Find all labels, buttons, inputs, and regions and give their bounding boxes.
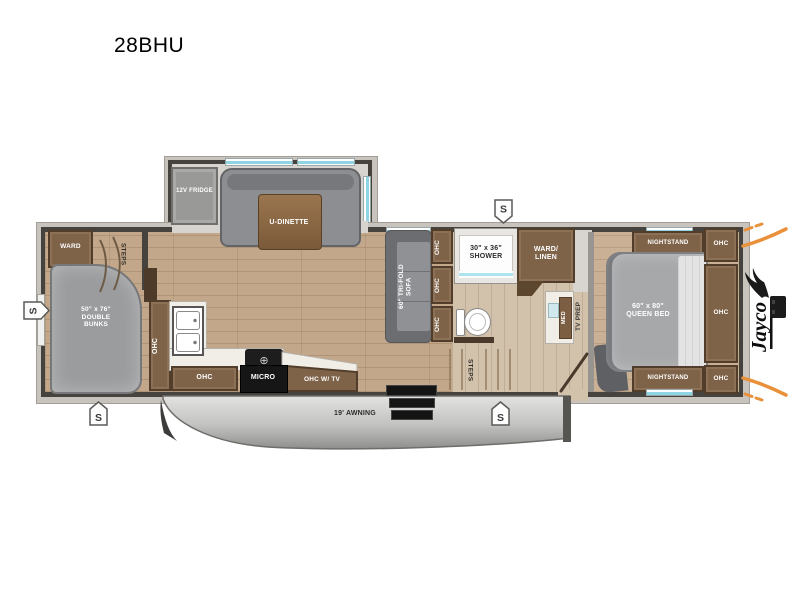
nightstand-label: NIGHTSTAND — [632, 240, 704, 247]
shower-label: 30" x 36" SHOWER — [456, 245, 516, 262]
fridge — [171, 167, 218, 225]
svg-text:S: S — [497, 412, 504, 424]
speaker-icon: S — [90, 402, 107, 425]
bedroom-steps-label: STEPS — [466, 350, 474, 390]
entry-steps — [389, 398, 435, 408]
vanity-sink — [548, 303, 559, 318]
entry-steps — [386, 385, 437, 396]
speaker-icon: S — [492, 402, 509, 425]
ohc-cabinet-label: OHC — [434, 271, 442, 299]
nightstand-label: NIGHTSTAND — [632, 375, 704, 382]
awning-label: 19' AWNING — [320, 410, 390, 418]
awning-end-cap — [160, 400, 177, 441]
brand-logo-text: Jayco — [747, 302, 771, 353]
rear-steps-label: STEPS — [119, 236, 127, 272]
ohc-cabinet-label: OHC — [704, 240, 738, 248]
ohc-cabinet-label: OHC — [704, 309, 738, 317]
hitch-pin — [770, 296, 786, 318]
kitchen-pantry-ohc-label: OHC — [152, 330, 160, 362]
floorplan-page: 28BHU 12V FRIDGE U-DINETTE WARD 50" x 76… — [0, 0, 800, 600]
bedroom-platform-edge — [588, 232, 594, 392]
bath-threshold — [454, 337, 494, 343]
svg-text:S: S — [95, 412, 102, 424]
speaker-icon: S — [495, 200, 512, 223]
wall-divider — [144, 268, 157, 302]
ohc-cabinet-label: OHC — [434, 233, 442, 261]
sofa-label: 60" TRI-FOLD SOFA — [398, 248, 413, 326]
wardrobe-label: WARD — [48, 243, 93, 251]
sink-basin — [176, 333, 200, 352]
queen-bed-label: 60" x 80" QUEEN BED — [612, 303, 684, 320]
ohc-cabinet-label: OHC — [171, 374, 238, 382]
microwave-label: MICRO — [240, 374, 286, 382]
bunk-bed-label: 50" x 76" DOUBLE BUNKS — [54, 306, 138, 329]
tv-prep-label: TV PREP — [575, 293, 583, 339]
svg-text:S: S — [500, 204, 507, 216]
page-title: 28BHU — [114, 34, 234, 59]
ward-linen-label: WARD/ LINEN — [517, 246, 575, 263]
toilet-bowl — [464, 308, 491, 336]
dinette-bench-back — [227, 174, 354, 190]
window — [363, 176, 371, 224]
ohc-cabinet-label: OHC — [434, 310, 442, 338]
door-opening — [558, 389, 588, 401]
fridge-label: 12V FRIDGE — [167, 188, 222, 195]
sink-basin — [176, 311, 200, 330]
dinette-label: U-DINETTE — [256, 219, 322, 227]
ohc-tv-label: OHC W/ TV — [291, 376, 353, 384]
medicine-cabinet-label: MED — [561, 304, 567, 332]
ohc-cabinet-label: OHC — [704, 375, 738, 383]
window — [37, 294, 45, 346]
window — [225, 158, 293, 166]
window — [297, 158, 355, 166]
bunk-bed — [50, 264, 142, 394]
window — [646, 389, 693, 396]
entry-steps — [391, 410, 433, 420]
shower-glass — [459, 271, 513, 278]
